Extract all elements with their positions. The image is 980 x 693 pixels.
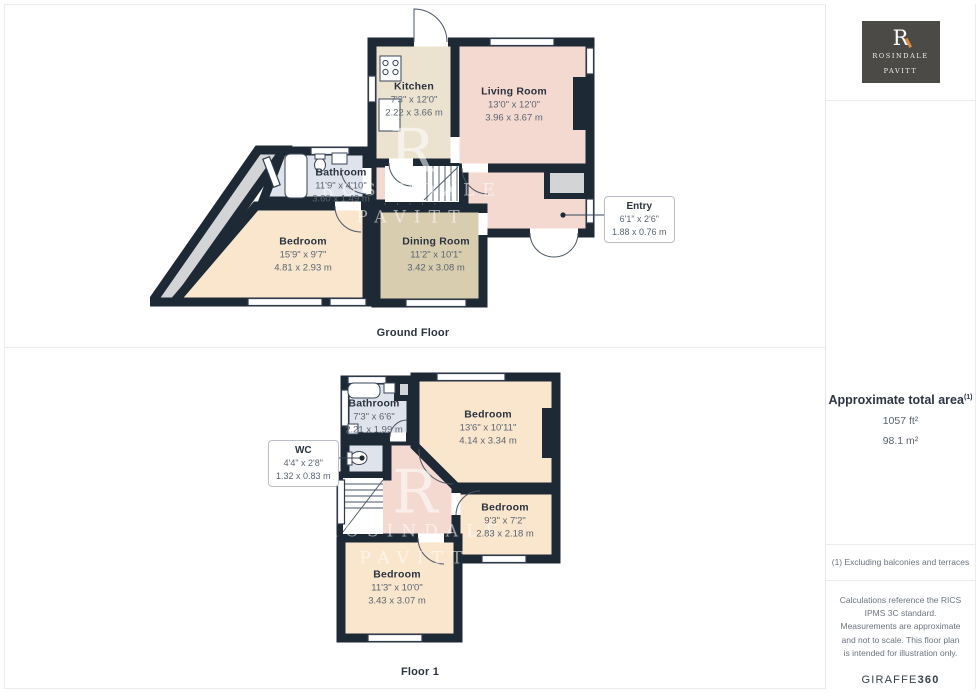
area-title: Approximate total area(1)	[826, 393, 975, 407]
entry-door-gap	[530, 229, 578, 238]
entry-leader-dot	[560, 212, 565, 217]
room-dims-imperial: 11'3" x 10'0"	[368, 583, 426, 595]
room-dims-metric: 2.21 x 1.99 m	[345, 425, 403, 437]
room-label-bedroom-top-f1: Bedroom 13'6" x 10'11" 4.14 x 3.34 m	[459, 409, 517, 448]
room-dims-metric: 1.88 x 0.76 m	[612, 227, 667, 239]
hall-closet	[547, 170, 587, 196]
window	[368, 635, 422, 642]
room-dims-imperial: 13'0" x 12'0"	[481, 100, 547, 112]
window	[369, 76, 376, 102]
room-name: Bedroom	[459, 409, 517, 422]
window	[490, 39, 554, 46]
room-dims-imperial: 4'4" x 2'8"	[276, 458, 331, 470]
room-name: Bedroom	[476, 502, 534, 515]
room-dims-imperial: 9'3" x 7'2"	[476, 516, 534, 528]
window	[406, 300, 466, 307]
window	[587, 48, 594, 74]
chimney	[573, 77, 590, 130]
room-name: Bedroom	[274, 236, 332, 249]
window	[437, 374, 505, 381]
room-dims-metric: 2.83 x 2.18 m	[476, 529, 534, 541]
door-gap	[389, 159, 413, 168]
room-dims-metric: 1.32 x 0.83 m	[276, 471, 331, 483]
door-arc	[414, 9, 447, 42]
room-label-living-room: Living Room 13'0" x 12'0" 3.96 x 3.67 m	[481, 86, 547, 125]
room-dims-imperial: 11'9" x 4'10"	[312, 181, 370, 193]
window	[248, 299, 322, 306]
room-dims-metric: 2.22 x 3.66 m	[385, 108, 443, 120]
room-dims-metric: 3.42 x 3.08 m	[402, 263, 470, 275]
window	[338, 480, 345, 524]
giraffe360-brand: GIRAFFE360	[838, 672, 963, 689]
area-value-ft: 1057 ft²	[826, 415, 975, 427]
disclaimer: Calculations reference the RICS IPMS 3C …	[826, 581, 975, 689]
footnote-text: (1) Excluding balconies and terraces	[832, 557, 970, 567]
area-summary: Approximate total area(1) 1057 ft² 98.1 …	[826, 101, 975, 545]
window	[348, 377, 386, 384]
area-title-superscript: (1)	[964, 394, 973, 401]
basin-icon	[332, 153, 347, 164]
basin-icon	[384, 383, 395, 393]
bathtub-icon	[285, 154, 307, 198]
room-dims-metric: 3.96 x 3.67 m	[481, 113, 547, 125]
room-name: WC	[276, 444, 331, 457]
stove-burner-icon	[383, 60, 388, 65]
window	[482, 556, 526, 563]
door-gap	[451, 137, 460, 163]
brand-logo: R ROSINDALE · · · · · PAVITT	[862, 21, 940, 83]
stove-icon	[380, 56, 401, 81]
area-value-m: 98.1 m²	[826, 435, 975, 447]
room-dims-metric: 4.81 x 2.93 m	[274, 263, 332, 275]
room-name: Dining Room	[402, 236, 470, 249]
room-name: Bathroom	[312, 167, 370, 180]
room-dims-imperial: 6'1" x 2'6"	[612, 214, 667, 226]
room-dims-metric: 4.14 x 3.34 m	[459, 436, 517, 448]
window	[587, 199, 594, 223]
wc-callout: WC 4'4" x 2'8" 1.32 x 0.83 m	[268, 440, 339, 487]
entry-callout: Entry 6'1" x 2'6" 1.88 x 0.76 m	[604, 196, 675, 243]
room-label-bedroom-bottom-f1: Bedroom 11'3" x 10'0" 3.43 x 3.07 m	[368, 569, 426, 608]
room-label-bedroom-mid-f1: Bedroom 9'3" x 7'2" 2.83 x 2.18 m	[476, 502, 534, 541]
door-gap	[479, 213, 488, 235]
giraffe-360: 360	[918, 674, 940, 686]
door-gap	[414, 38, 448, 47]
sidebar: R ROSINDALE · · · · · PAVITT Approximate…	[825, 4, 975, 689]
room-name: Entry	[612, 200, 667, 213]
room-dims-imperial: 7'3" x 12'0"	[385, 95, 443, 107]
chimney	[542, 408, 556, 458]
floors-divider	[4, 347, 825, 348]
stove-burner-icon	[393, 69, 398, 74]
window	[330, 299, 366, 306]
stove-burner-icon	[383, 69, 388, 74]
ground-floor-title: Ground Floor	[377, 327, 450, 339]
room-label-kitchen: Kitchen 7'3" x 12'0" 2.22 x 3.66 m	[385, 81, 443, 120]
door-gap	[418, 534, 444, 543]
giraffe-text: GIRAFFE	[861, 674, 917, 686]
room-name: Kitchen	[385, 81, 443, 94]
toilet-tank-icon	[315, 154, 325, 159]
door-gap	[462, 164, 488, 173]
room-dims-metric: 3.43 x 3.07 m	[368, 596, 426, 608]
floor1-title: Floor 1	[401, 666, 439, 678]
room-dims-imperial: 11'2" x 10'1"	[402, 250, 470, 262]
area-title-text: Approximate total area	[828, 393, 963, 407]
room-dims-imperial: 15'9" x 9'7"	[274, 250, 332, 262]
bathtub-icon	[348, 383, 380, 398]
ground-floor-plan	[150, 0, 680, 330]
room-name: Bedroom	[368, 569, 426, 582]
footnote: (1) Excluding balconies and terraces	[826, 545, 975, 581]
room-dims-imperial: 13'6" x 10'11"	[459, 423, 517, 435]
stairs-bg	[385, 166, 459, 202]
room-label-bedroom: Bedroom 15'9" x 9'7" 4.81 x 2.93 m	[274, 236, 332, 275]
room-dims-metric: 3.60 x 1.49 m	[312, 194, 370, 206]
room-label-bathroom-f1: Bathroom 7'3" x 6'6" 2.21 x 1.99 m	[345, 398, 403, 437]
airing-cupboard	[397, 381, 411, 398]
room-label-dining-room: Dining Room 11'2" x 10'1" 3.42 x 3.08 m	[402, 236, 470, 275]
brand-name-bottom: PAVITT	[884, 67, 918, 75]
room-name: Living Room	[481, 86, 547, 99]
disclaimer-text: Calculations reference the RICS IPMS 3C …	[840, 595, 961, 658]
floor1-plan	[255, 360, 585, 660]
brand-logo-section: R ROSINDALE · · · · · PAVITT	[826, 4, 975, 101]
room-label-bathroom: Bathroom 11'9" x 4'10" 3.60 x 1.49 m	[312, 167, 370, 206]
brand-logo-r: R	[893, 28, 909, 49]
wc-leader-dot	[359, 455, 364, 460]
stove-burner-icon	[393, 60, 398, 65]
room-dims-imperial: 7'3" x 6'6"	[345, 412, 403, 424]
brand-divider-dots: · · · · ·	[885, 60, 917, 64]
room-name: Bathroom	[345, 398, 403, 411]
